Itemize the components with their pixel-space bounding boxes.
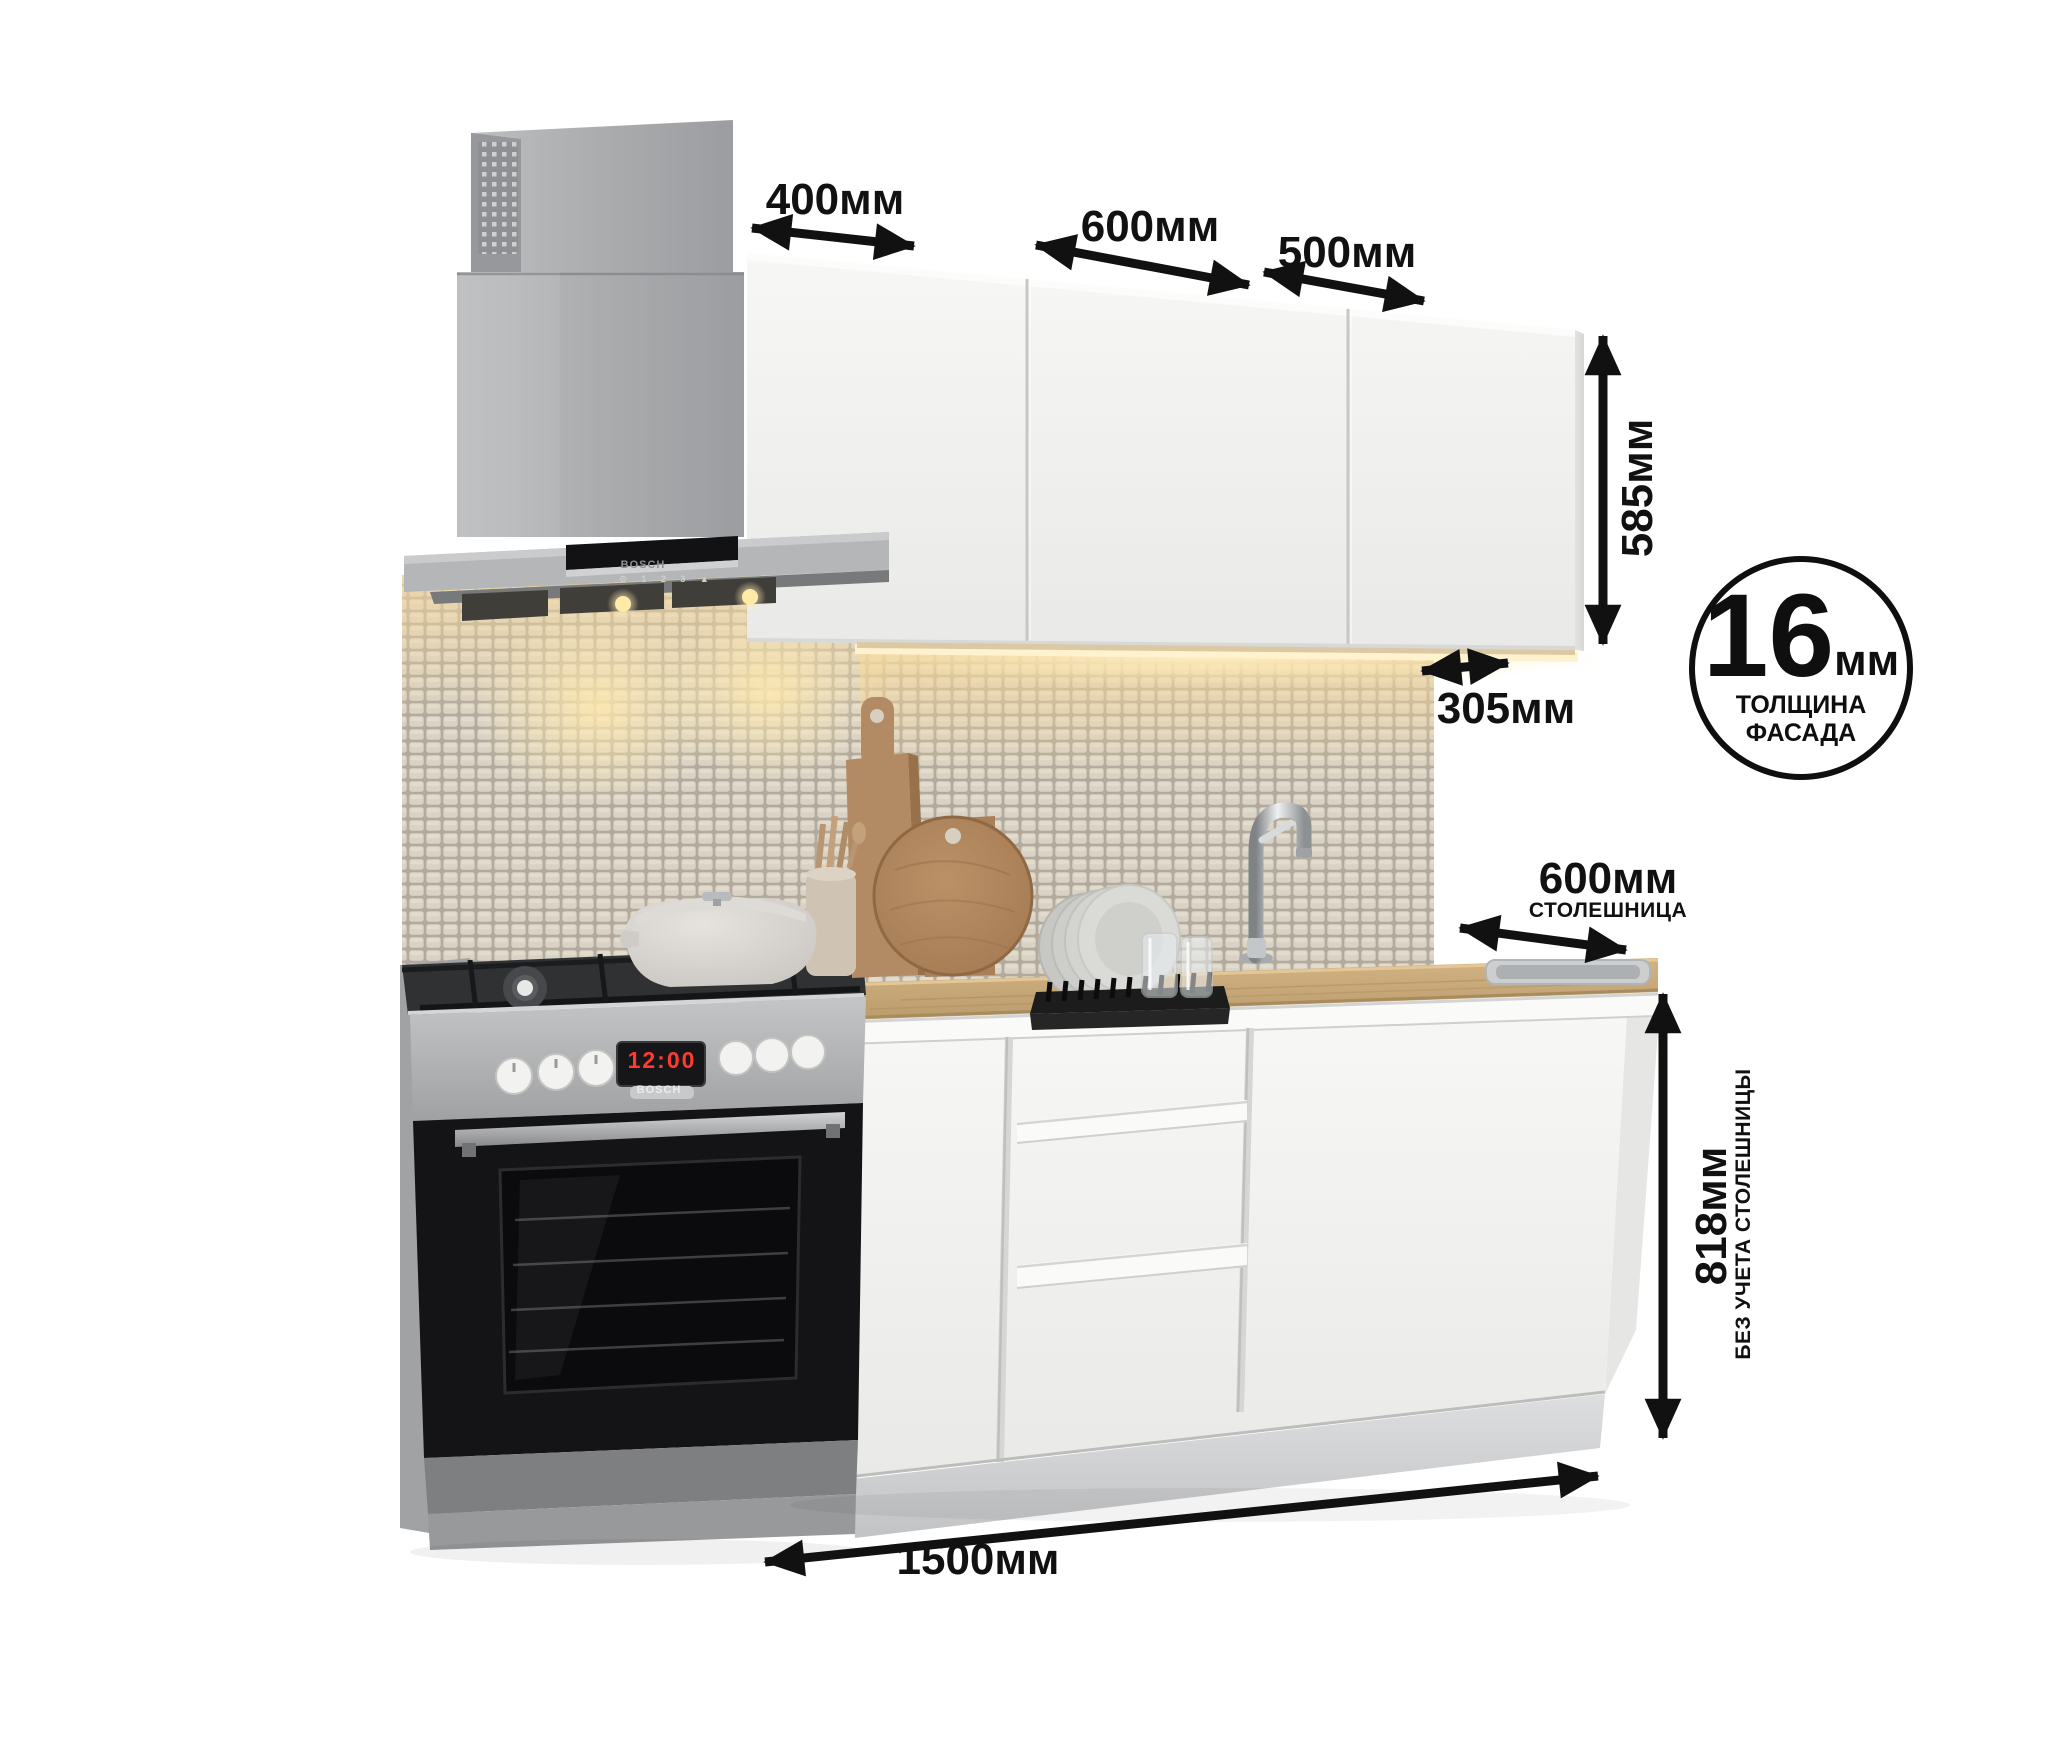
sink	[1486, 960, 1650, 984]
label-width-600: 600мм	[1060, 203, 1240, 251]
kitchen-dimension-diagram: 400мм 600мм 500мм 585мм 305мм 600мм СТОЛ…	[0, 0, 2048, 1757]
label-width-400: 400мм	[745, 176, 925, 224]
stove-clock: 12:00	[622, 1047, 702, 1074]
kitchen-render	[0, 0, 2048, 1757]
label-counter-600: 600мм	[1518, 856, 1698, 902]
label-base-818-sub: БЕЗ УЧЕТА СТОЛЕШНИЦЫ	[1732, 1064, 1756, 1364]
label-height-585: 585мм	[1613, 388, 1663, 588]
label-depth-305: 305мм	[1416, 685, 1596, 733]
hood-brand-logo: BOSCH	[598, 559, 688, 571]
cutting-board-round	[874, 817, 1032, 975]
label-base-818: 818мм	[1686, 1096, 1738, 1336]
vent-grille-icon	[478, 142, 518, 254]
arrow-400mm	[752, 228, 914, 246]
wall-cabinets	[747, 253, 1584, 655]
hood-touch-controls: ⊙ 1 2 3 ▲	[612, 574, 722, 585]
arrow-600mm-counter	[1460, 928, 1626, 950]
badge-unit: мм	[1834, 643, 1899, 685]
base-cabinets	[843, 990, 1660, 1538]
label-width-500: 500мм	[1257, 229, 1437, 277]
stove-brand-logo: BOSCH	[614, 1084, 704, 1096]
badge-value-row: 16 мм	[1703, 588, 1899, 685]
gas-stove	[400, 945, 866, 1550]
facade-thickness-badge: 16 мм ТОЛЩИНА ФАСАДА	[1689, 556, 1913, 780]
badge-caption-1: ТОЛЩИНА	[1736, 691, 1867, 720]
badge-caption-2: ФАСАДА	[1746, 719, 1856, 748]
label-counter-sub: СТОЛЕШНИЦА	[1518, 899, 1698, 923]
badge-value: 16	[1703, 588, 1834, 685]
pot	[620, 892, 816, 987]
label-total-1500: 1500мм	[888, 1536, 1068, 1584]
glasses	[1142, 933, 1212, 997]
